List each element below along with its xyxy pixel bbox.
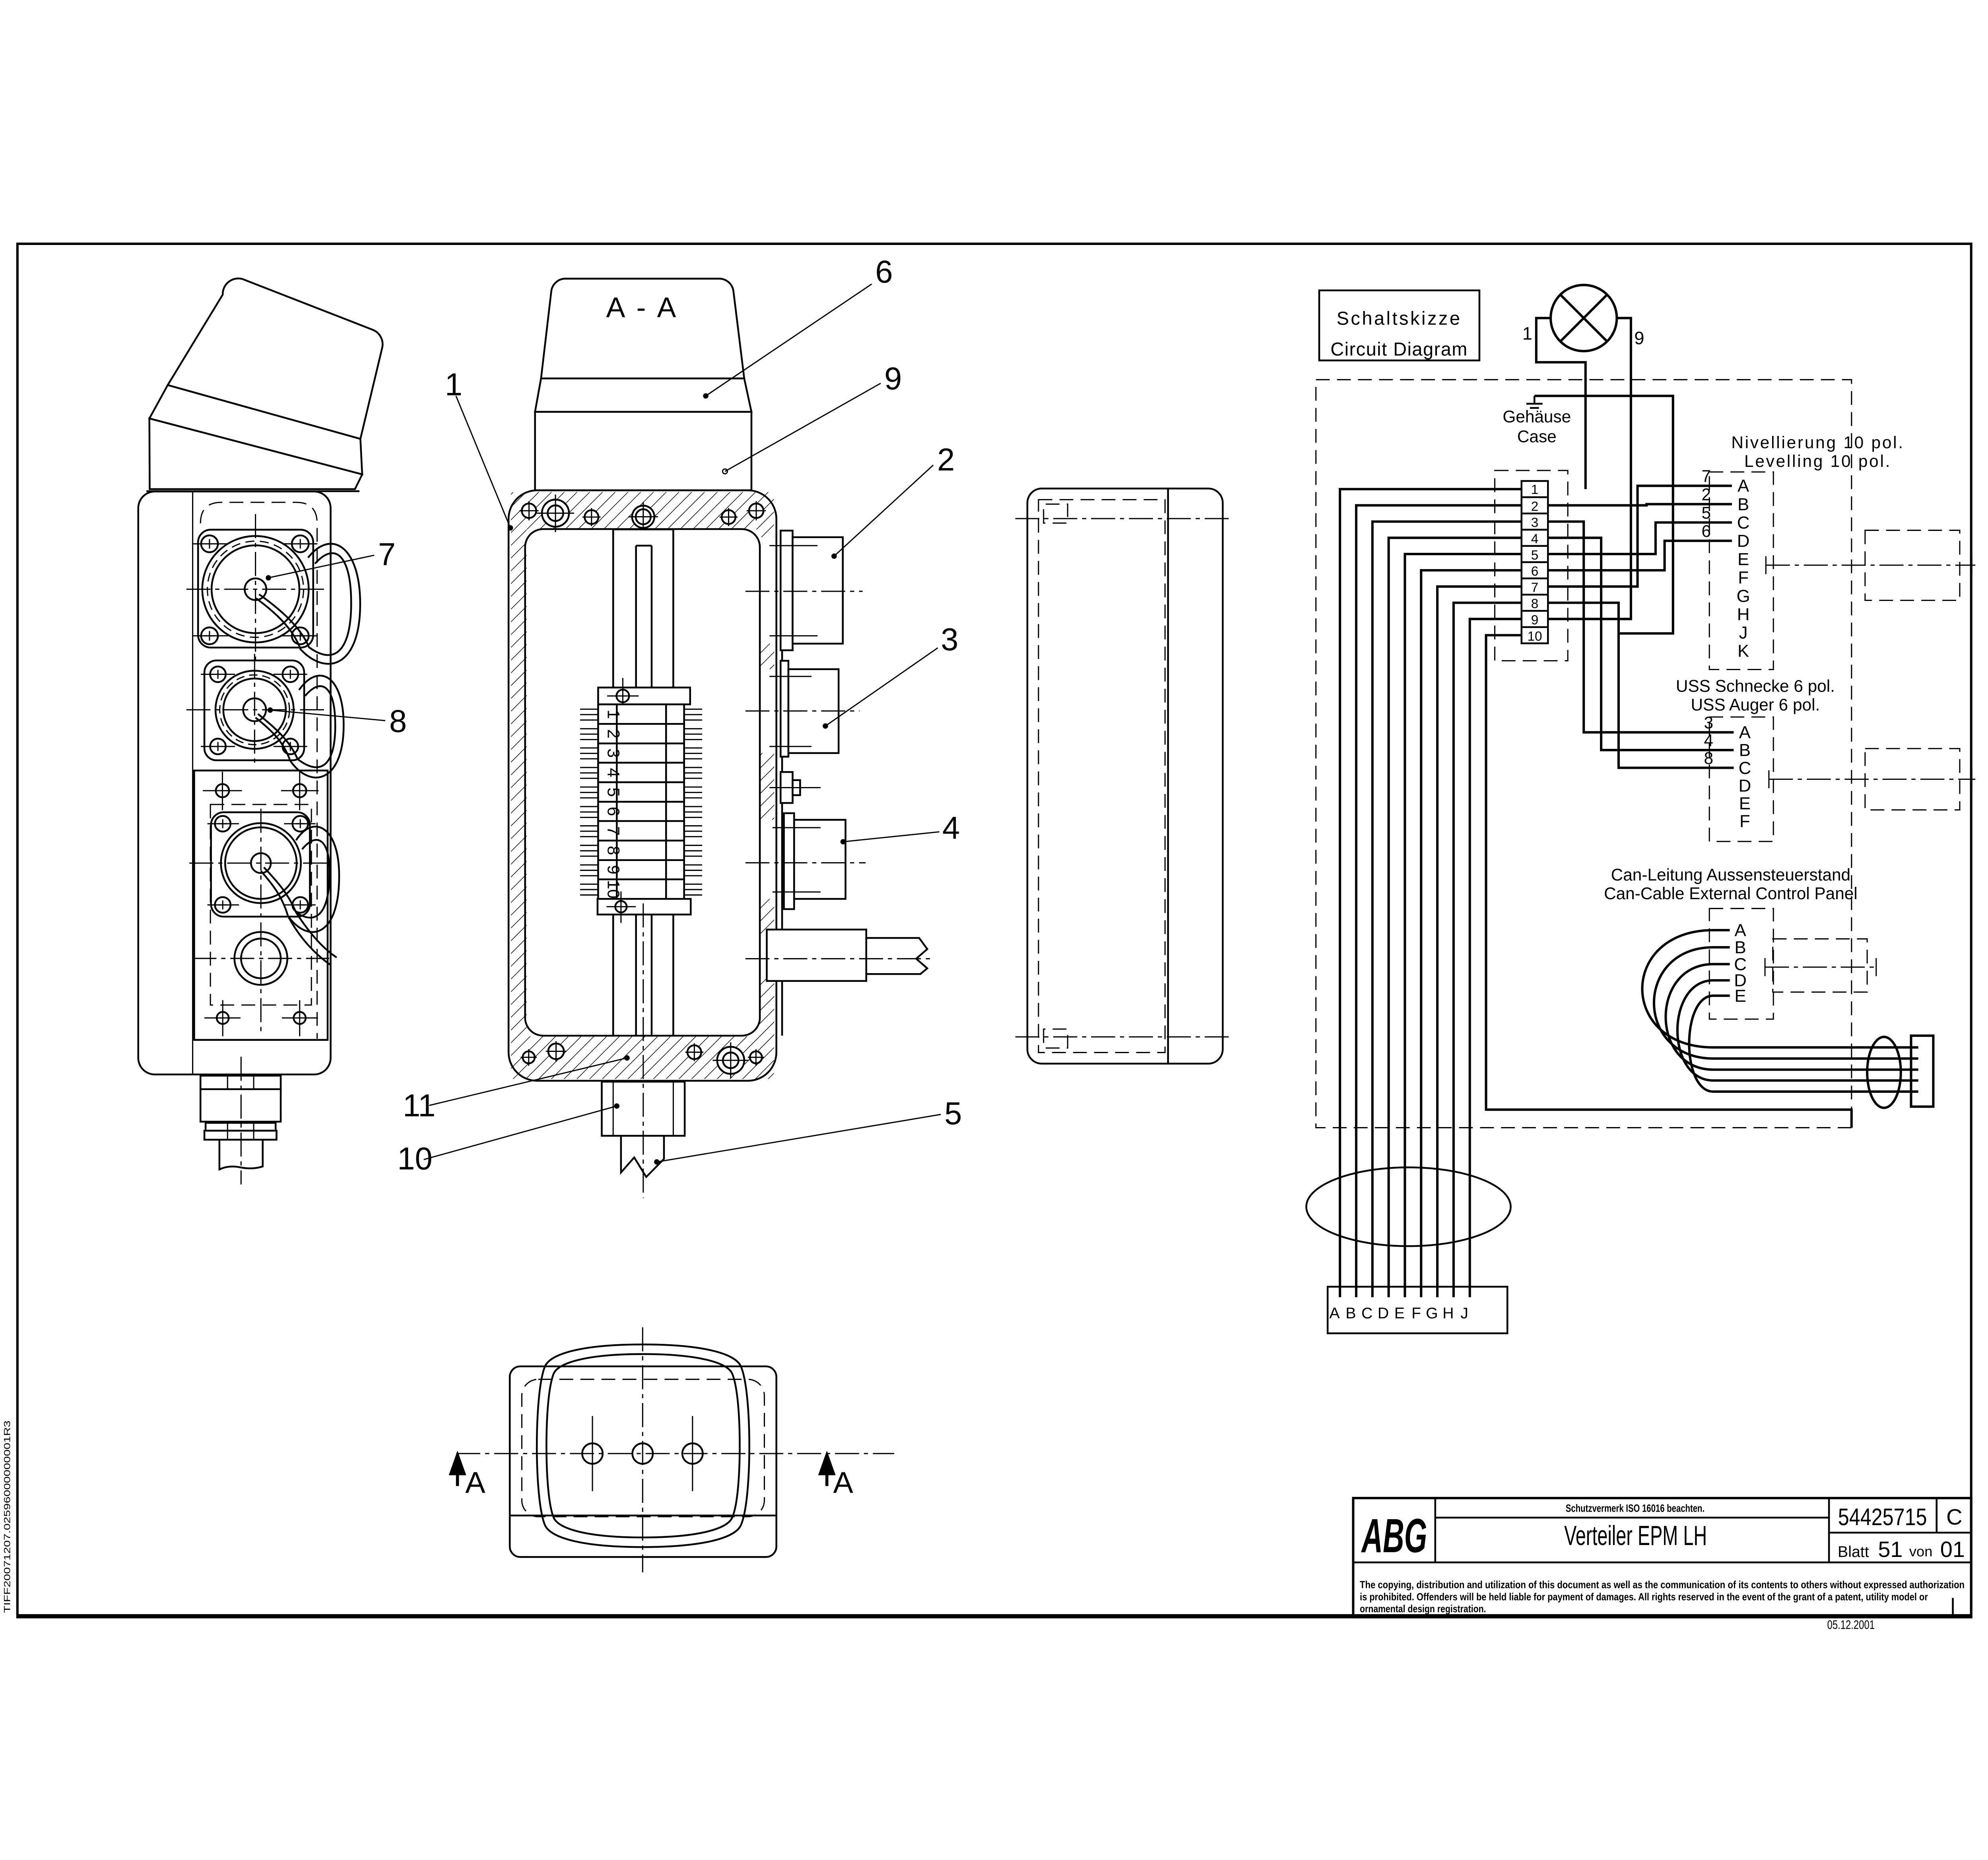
svg-text:5: 5 xyxy=(944,1096,962,1131)
svg-text:C: C xyxy=(1946,1504,1962,1529)
svg-text:6: 6 xyxy=(1701,522,1711,540)
svg-text:7: 7 xyxy=(1701,467,1711,486)
svg-text:5: 5 xyxy=(1531,548,1539,563)
svg-text:D: D xyxy=(1378,1304,1389,1322)
svg-text:4: 4 xyxy=(942,810,960,845)
svg-text:H: H xyxy=(1737,604,1750,624)
svg-text:Verteiler EPM LH: Verteiler EPM LH xyxy=(1564,1520,1707,1551)
svg-text:6: 6 xyxy=(875,254,893,290)
svg-text:5: 5 xyxy=(1701,503,1711,522)
svg-text:9: 9 xyxy=(1634,328,1644,348)
svg-text:A - A: A - A xyxy=(606,292,679,323)
svg-text:E: E xyxy=(1738,550,1749,569)
svg-text:The copying, distribution and: The copying, distribution and utilizatio… xyxy=(1360,1580,1965,1591)
svg-text:A: A xyxy=(1734,921,1746,940)
svg-text:51: 51 xyxy=(1878,1537,1903,1562)
svg-text:ABG: ABG xyxy=(1361,1509,1427,1563)
svg-text:B: B xyxy=(1738,495,1749,514)
svg-text:2: 2 xyxy=(1531,499,1539,514)
svg-text:Gehäuse: Gehäuse xyxy=(1503,407,1571,426)
svg-text:E: E xyxy=(1734,986,1746,1006)
svg-text:F: F xyxy=(1738,568,1749,587)
svg-text:Can-Cable External Control Pan: Can-Cable External Control Panel xyxy=(1604,884,1858,903)
svg-text:3: 3 xyxy=(941,622,958,657)
svg-text:7: 7 xyxy=(1531,580,1539,595)
svg-text:G: G xyxy=(1426,1304,1438,1322)
svg-text:A: A xyxy=(1329,1304,1340,1322)
svg-text:11: 11 xyxy=(403,1088,435,1123)
svg-text:1: 1 xyxy=(1531,482,1539,497)
svg-text:8: 8 xyxy=(1704,749,1713,768)
svg-text:J: J xyxy=(1739,623,1748,643)
svg-text:54425715: 54425715 xyxy=(1838,1503,1927,1530)
svg-text:8: 8 xyxy=(389,704,407,739)
svg-text:1: 1 xyxy=(1522,323,1532,344)
svg-text:F: F xyxy=(1411,1304,1421,1322)
svg-text:is prohibited. Offenders will: is prohibited. Offenders will be held li… xyxy=(1360,1592,1928,1603)
svg-text:01: 01 xyxy=(1940,1537,1965,1562)
svg-text:Schaltskizze: Schaltskizze xyxy=(1337,308,1462,328)
svg-text:D: D xyxy=(1737,531,1750,551)
svg-text:von: von xyxy=(1909,1543,1932,1560)
svg-text:E: E xyxy=(1394,1304,1405,1322)
svg-text:E: E xyxy=(1739,794,1751,813)
svg-text:F: F xyxy=(1739,812,1750,831)
svg-text:C: C xyxy=(1361,1304,1373,1322)
svg-text:A: A xyxy=(833,1466,854,1499)
svg-text:Blatt: Blatt xyxy=(1838,1543,1869,1561)
svg-text:B: B xyxy=(1345,1304,1356,1322)
svg-text:4: 4 xyxy=(1704,731,1713,750)
svg-text:3: 3 xyxy=(1704,713,1713,732)
svg-text:ornamental design registration: ornamental design registration. xyxy=(1360,1603,1486,1615)
svg-text:K: K xyxy=(1738,641,1749,661)
svg-text:8: 8 xyxy=(1531,597,1539,611)
svg-text:J: J xyxy=(1460,1304,1468,1322)
svg-text:9: 9 xyxy=(604,865,623,875)
svg-text:05.12.2001: 05.12.2001 xyxy=(1827,1617,1875,1632)
svg-text:2: 2 xyxy=(604,729,623,739)
svg-text:7: 7 xyxy=(604,826,623,836)
svg-text:B: B xyxy=(1739,741,1751,760)
svg-text:6: 6 xyxy=(1531,564,1539,579)
svg-text:4: 4 xyxy=(604,768,623,777)
svg-text:10: 10 xyxy=(1528,629,1542,644)
svg-text:5: 5 xyxy=(604,787,623,797)
svg-text:1: 1 xyxy=(604,709,623,719)
svg-text:USS Schnecke 6 pol.: USS Schnecke 6 pol. xyxy=(1676,676,1835,695)
svg-text:10: 10 xyxy=(604,880,623,899)
svg-text:9: 9 xyxy=(884,361,902,396)
svg-text:C: C xyxy=(1737,513,1750,533)
svg-text:Circuit Diagram: Circuit Diagram xyxy=(1330,339,1468,360)
svg-text:C: C xyxy=(1739,758,1751,778)
svg-text:2: 2 xyxy=(937,442,955,477)
svg-text:Can-Leitung Aussensteuerstand: Can-Leitung Aussensteuerstand xyxy=(1611,865,1850,884)
svg-text:Nivellierung 10 pol.: Nivellierung 10 pol. xyxy=(1731,433,1905,452)
svg-text:6: 6 xyxy=(604,807,623,816)
svg-text:10: 10 xyxy=(397,1141,432,1176)
svg-text:7: 7 xyxy=(378,536,396,572)
svg-text:2: 2 xyxy=(1701,485,1711,504)
svg-text:Schutzvermerk ISO 16016 beacht: Schutzvermerk ISO 16016 beachten. xyxy=(1566,1502,1705,1514)
svg-text:A: A xyxy=(465,1466,485,1499)
svg-text:1: 1 xyxy=(445,367,462,402)
svg-text:9: 9 xyxy=(1531,613,1539,628)
svg-text:8: 8 xyxy=(604,846,623,855)
svg-text:D: D xyxy=(1739,776,1751,795)
svg-text:A: A xyxy=(1738,476,1749,496)
svg-text:H: H xyxy=(1442,1304,1454,1322)
svg-text:3: 3 xyxy=(604,748,623,758)
svg-text:4: 4 xyxy=(1531,532,1539,546)
svg-text:Levelling 10 pol.: Levelling 10 pol. xyxy=(1744,452,1891,470)
svg-text:USS Auger 6 pol.: USS Auger 6 pol. xyxy=(1691,695,1820,714)
svg-text:3: 3 xyxy=(1531,515,1539,530)
svg-text:TIFF20071207.02596000000001R3: TIFF20071207.02596000000001R3 xyxy=(2,1421,12,1613)
svg-text:Case: Case xyxy=(1517,427,1557,446)
svg-text:G: G xyxy=(1737,586,1750,606)
svg-text:A: A xyxy=(1739,723,1751,742)
